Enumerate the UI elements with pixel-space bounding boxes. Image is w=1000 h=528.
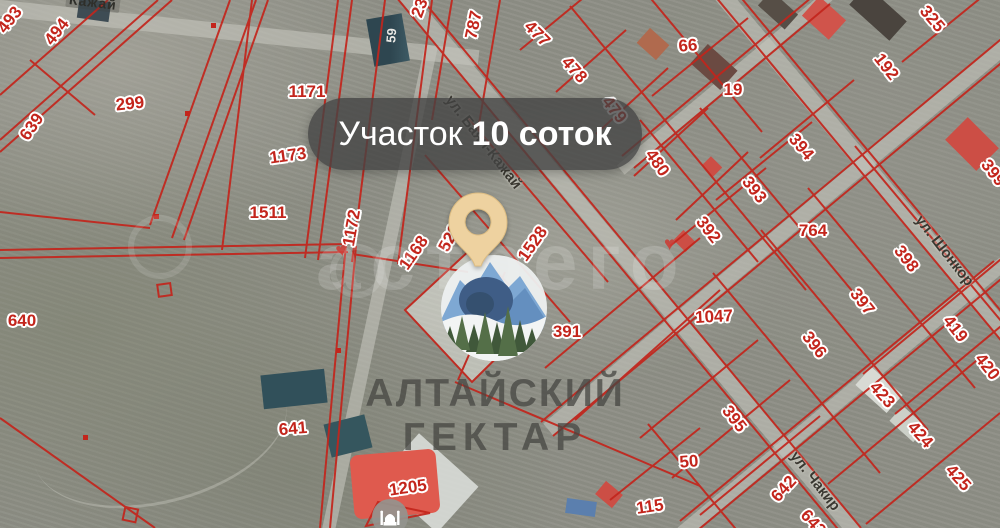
logo-circle — [441, 255, 547, 361]
building-roof — [260, 369, 327, 410]
watermark-shape — [128, 215, 192, 279]
parcel-number-393: 393 — [737, 173, 770, 208]
parcel-number-19: 19 — [724, 80, 743, 100]
brand-line-1: АЛТАЙСКИЙ — [320, 372, 670, 416]
parcel-number-639: 639 — [16, 110, 49, 145]
parcel-number-394: 394 — [784, 130, 818, 165]
parcel-number-50: 50 — [679, 451, 700, 473]
parcel-number-325: 325 — [915, 2, 949, 37]
parcel-number-787: 787 — [461, 9, 486, 41]
mosque-icon[interactable] — [372, 499, 408, 528]
parcel-number-299: 299 — [115, 93, 145, 116]
map-pin-icon — [449, 193, 507, 266]
parcel-number-1511: 1511 — [250, 203, 287, 223]
brand-line-2: ГЕКТАР — [320, 416, 670, 460]
parcel-number-1047: 1047 — [695, 306, 734, 328]
parcel-number-425: 425 — [941, 461, 975, 495]
parcel-number-392: 392 — [691, 213, 724, 248]
plot-size-value: 10 соток — [472, 115, 612, 154]
parcel-number-397: 397 — [845, 285, 878, 320]
plot-size-prefix: Участок — [338, 115, 462, 154]
parcel-number-641: 641 — [278, 418, 308, 440]
building-roof — [595, 481, 623, 508]
plot-size-pill: Участок 10 соток — [308, 98, 642, 170]
satellite-map[interactable]: 4934942996391171117315111172116852978723… — [0, 0, 1000, 528]
building-number-label: 59 — [383, 28, 399, 44]
road-cross-2 — [678, 258, 1000, 528]
parcel-number-642: 642 — [767, 472, 801, 506]
pin-and-logo[interactable] — [390, 180, 610, 370]
dirt-track — [16, 329, 304, 528]
parcel-number-764: 764 — [799, 221, 827, 241]
parcel-number-192: 192 — [869, 50, 902, 85]
heart-icon: ♥ — [664, 234, 675, 256]
building-roof — [702, 156, 723, 177]
parcel-number-396: 396 — [797, 328, 830, 363]
parcel-number-640: 640 — [8, 311, 36, 331]
parcel-number-1171: 1171 — [289, 82, 326, 102]
parcel-number-420: 420 — [970, 350, 1000, 385]
street-label-shonkor: ул. Шонкор — [912, 212, 978, 289]
parcel-number-1173: 1173 — [268, 144, 307, 169]
parcel-number-398: 398 — [889, 242, 922, 277]
parcel-number-115: 115 — [635, 495, 665, 519]
parcel-number-66: 66 — [678, 35, 699, 57]
parcel-number-478: 478 — [557, 53, 591, 87]
building-roof — [637, 28, 670, 60]
parcel-number-643: 643 — [796, 506, 830, 528]
building-roof — [849, 0, 907, 41]
parcel-number-477: 477 — [520, 17, 554, 51]
building-roof — [565, 498, 597, 517]
